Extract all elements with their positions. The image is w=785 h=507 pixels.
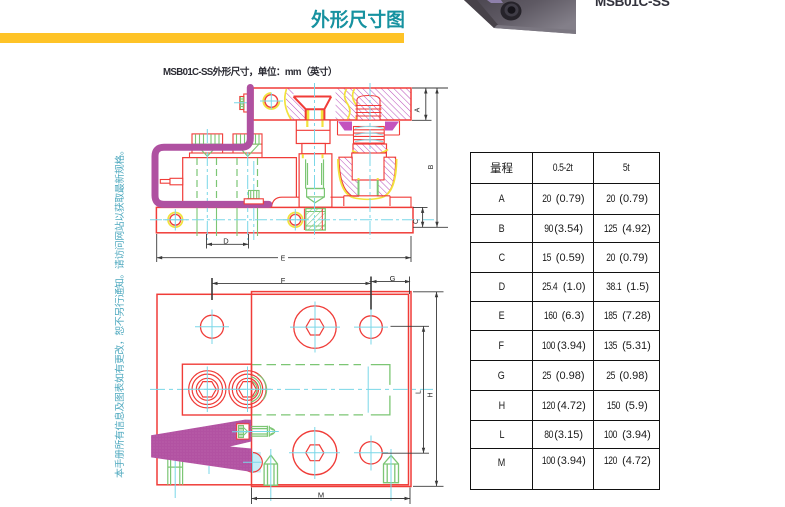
svg-text:F: F [281,276,286,285]
svg-text:C: C [413,219,420,224]
svg-text:H: H [427,392,434,397]
svg-text:L: L [415,390,422,394]
svg-text:M: M [318,491,324,500]
svg-text:G: G [390,274,396,283]
svg-text:B: B [428,164,435,169]
svg-text:A: A [415,107,422,112]
svg-text:E: E [281,256,286,263]
svg-text:D: D [223,236,229,245]
